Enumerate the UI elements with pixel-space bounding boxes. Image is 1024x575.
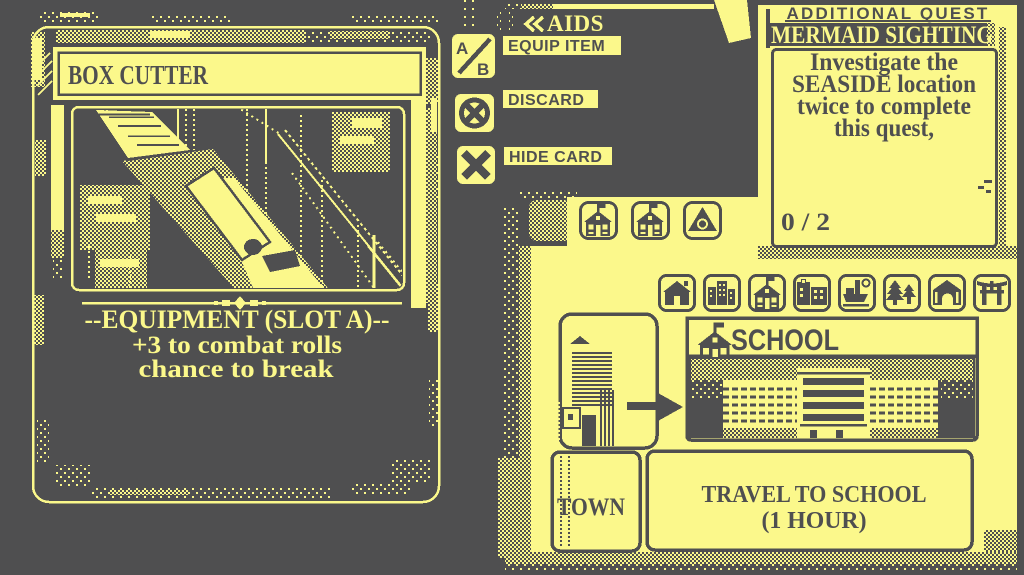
- svg-text:chance to break: chance to break: [139, 356, 334, 383]
- svg-text:this quest,: this quest,: [834, 115, 934, 142]
- svg-text:--EQUIPMENT (SLOT A)--: --EQUIPMENT (SLOT A)--: [85, 305, 390, 334]
- svg-text:(1 HOUR): (1 HOUR): [762, 508, 867, 534]
- svg-text:EQUIP ITEM: EQUIP ITEM: [508, 38, 605, 55]
- svg-text:SCHOOL: SCHOOL: [731, 324, 839, 357]
- svg-text:TRAVEL TO SCHOOL: TRAVEL TO SCHOOL: [702, 482, 927, 508]
- svg-text:+3 to combat rolls: +3 to combat rolls: [132, 332, 342, 359]
- svg-text:A: A: [456, 39, 468, 58]
- svg-text:HIDE CARD: HIDE CARD: [509, 149, 602, 166]
- svg-text:BOX CUTTER: BOX CUTTER: [68, 60, 208, 90]
- svg-text:MERMAID SIGHTING: MERMAID SIGHTING: [771, 22, 993, 49]
- svg-text:0 / 2: 0 / 2: [781, 209, 830, 236]
- svg-text:AIDS: AIDS: [547, 11, 604, 36]
- svg-text:DISCARD: DISCARD: [508, 92, 584, 109]
- svg-text:B: B: [477, 60, 489, 79]
